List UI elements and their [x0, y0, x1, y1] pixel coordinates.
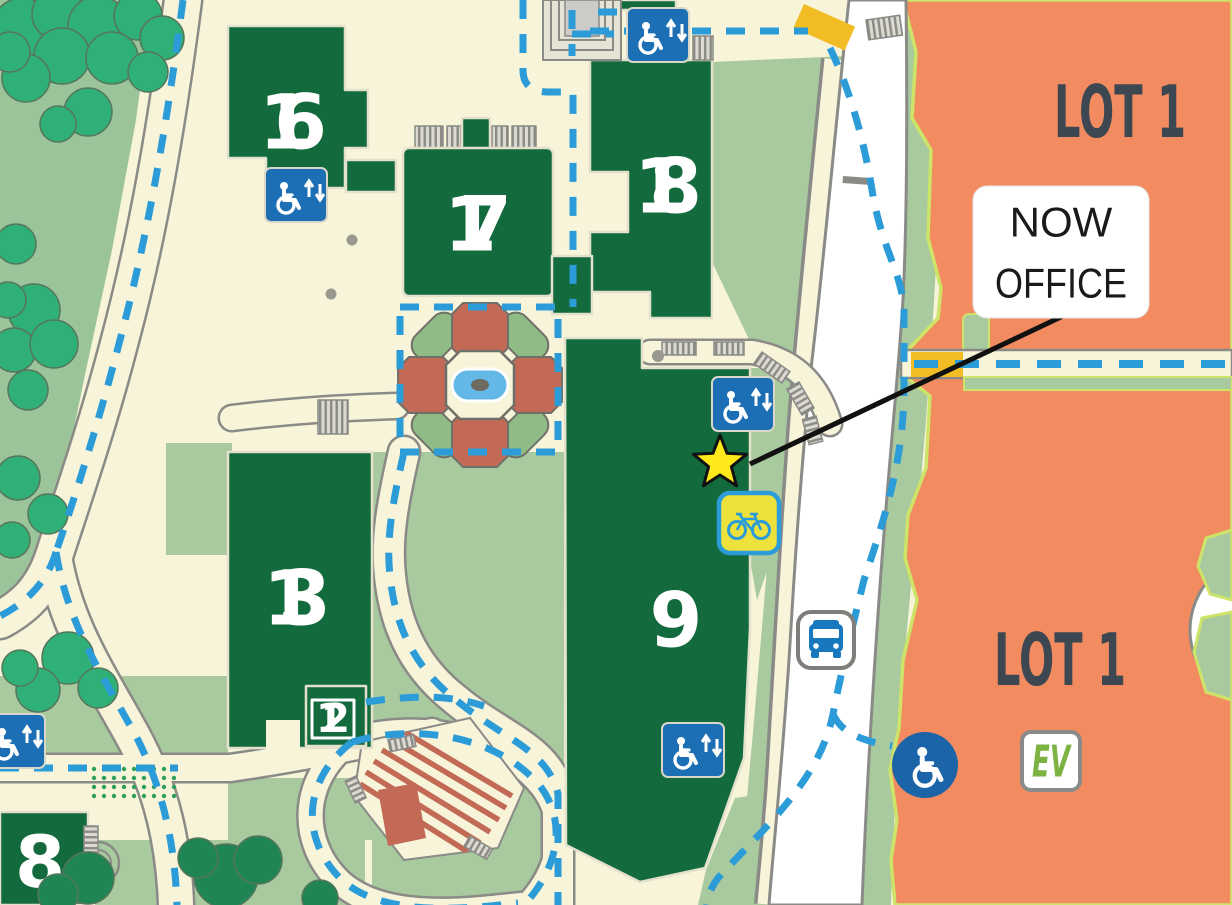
lot-1-label-bottom: LOT 1 [994, 618, 1126, 702]
parking-strip-top [866, 15, 902, 40]
stairs-9-north-b [714, 342, 744, 355]
building-13-notch [266, 720, 300, 750]
building-17-label: 17 [444, 180, 512, 269]
building-13-label: 13 [263, 554, 331, 643]
campus-map-canvas: 16 17 18 13 9 8 12 [0, 0, 1232, 905]
stairs-plaza-west [318, 400, 348, 434]
bike-parking-icon [719, 493, 779, 553]
stairs-17-c [492, 126, 508, 148]
callout-line2: OFFICE [995, 260, 1127, 307]
accessible-entrance-icon-3 [712, 377, 774, 431]
accessible-entrance-icon-5 [0, 714, 45, 768]
accessible-entrance-icon-4 [662, 723, 724, 777]
stairs-17-b [447, 126, 461, 148]
ev-label: EV [1032, 737, 1072, 788]
building-16-annex [346, 160, 396, 192]
stairs-17-d [512, 126, 536, 148]
campus-map: 16 17 18 13 9 8 12 [0, 0, 1232, 905]
building-12-label: 12 [316, 696, 350, 742]
garden-plot [88, 764, 178, 800]
building-18-label: 18 [634, 142, 702, 231]
fountain-plaza [398, 303, 562, 467]
stairs-9-north-a [662, 342, 696, 355]
bus-stop-icon [798, 612, 854, 668]
bollard-c [652, 350, 664, 362]
stairs-17-a [415, 126, 443, 148]
building-16-label: 16 [259, 78, 327, 167]
bollard-a [347, 235, 358, 246]
lot-green-strip [964, 377, 1232, 390]
stairs-8-a [84, 826, 98, 852]
bollard-b [326, 289, 337, 300]
callout-line1: NOW [1010, 199, 1113, 246]
accessible-entrance-icon-2 [265, 168, 327, 222]
now-office-callout: NOW OFFICE [973, 186, 1149, 318]
accessible-parking-icon [892, 732, 958, 798]
accessible-entrance-icon-1 [627, 8, 689, 62]
stairs-18-top [693, 36, 713, 60]
ev-charging-icon: EV [1022, 732, 1080, 790]
lawn-west-of-13 [166, 443, 232, 555]
building-9-label: 9 [650, 576, 703, 665]
lot-1-label-top: LOT 1 [1054, 70, 1186, 154]
